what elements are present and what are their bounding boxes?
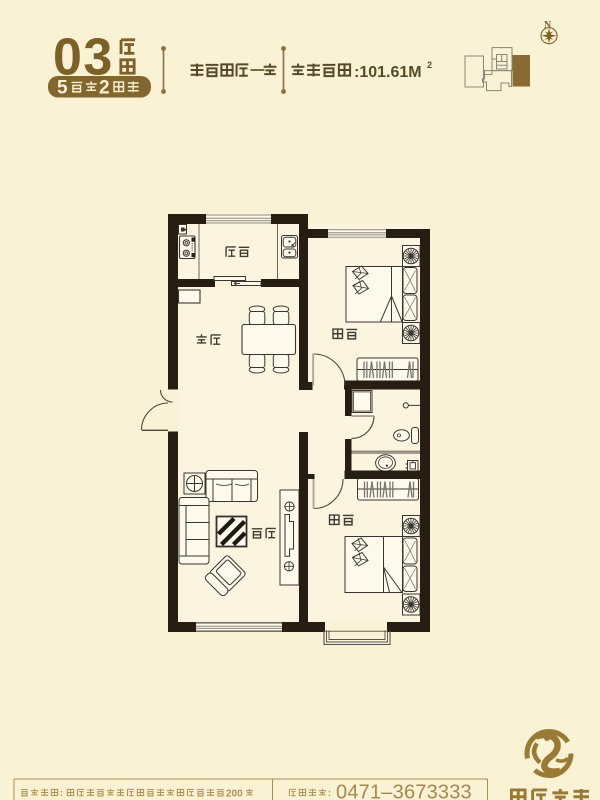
svg-text:2: 2 — [427, 60, 432, 70]
svg-text:0471–3673333: 0471–3673333 — [336, 782, 472, 800]
svg-text:200: 200 — [226, 789, 243, 800]
svg-text:5: 5 — [57, 78, 68, 99]
svg-text::: : — [328, 788, 331, 798]
svg-text::: : — [60, 788, 63, 798]
svg-text:N: N — [544, 20, 552, 31]
svg-text:2: 2 — [99, 78, 110, 99]
svg-text::101.61M: :101.61M — [354, 64, 422, 81]
